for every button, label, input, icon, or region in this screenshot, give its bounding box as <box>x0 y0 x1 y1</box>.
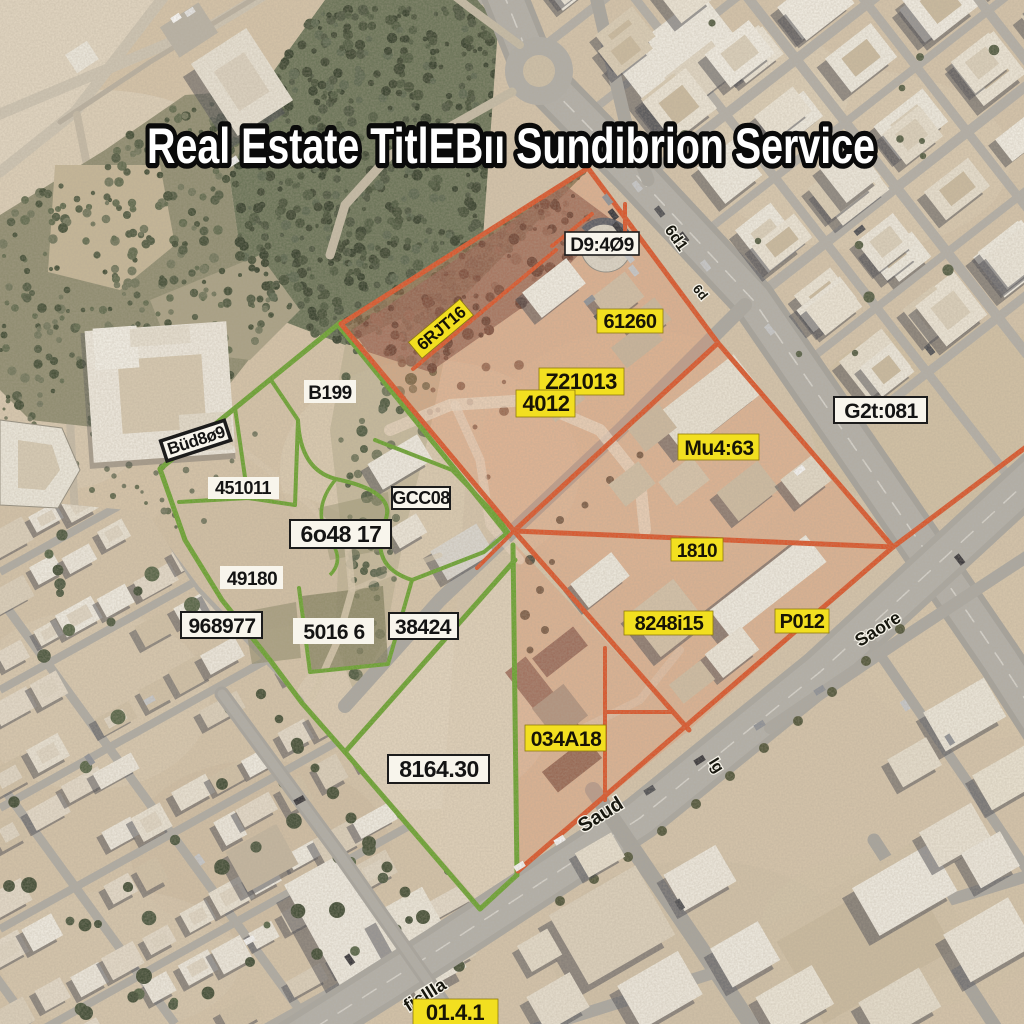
svg-text:451011: 451011 <box>215 478 272 498</box>
svg-text:4012: 4012 <box>523 391 570 416</box>
svg-text:Real Estate TitlEBıı Sundibrio: Real Estate TitlEBıı Sundibrion Service <box>147 118 875 174</box>
svg-text:8164.30: 8164.30 <box>399 756 479 782</box>
svg-text:6o48 17: 6o48 17 <box>301 521 382 547</box>
svg-text:Mu4:63: Mu4:63 <box>684 437 753 460</box>
svg-text:49180: 49180 <box>227 569 277 590</box>
svg-text:61260: 61260 <box>603 311 656 333</box>
svg-text:P012: P012 <box>780 611 825 633</box>
svg-text:8248i15: 8248i15 <box>635 613 704 635</box>
svg-text:5016 6: 5016 6 <box>303 621 364 644</box>
svg-text:01.4.1: 01.4.1 <box>426 1000 484 1024</box>
svg-text:G2t:081: G2t:081 <box>844 400 918 423</box>
svg-text:1810: 1810 <box>677 541 717 562</box>
svg-text:034A18: 034A18 <box>531 728 602 751</box>
svg-text:968977: 968977 <box>188 615 255 638</box>
svg-text:38424: 38424 <box>395 616 452 639</box>
svg-text:D9:4Ø9: D9:4Ø9 <box>570 235 634 256</box>
svg-text:B199: B199 <box>308 383 351 404</box>
svg-text:GCC08: GCC08 <box>392 488 450 508</box>
